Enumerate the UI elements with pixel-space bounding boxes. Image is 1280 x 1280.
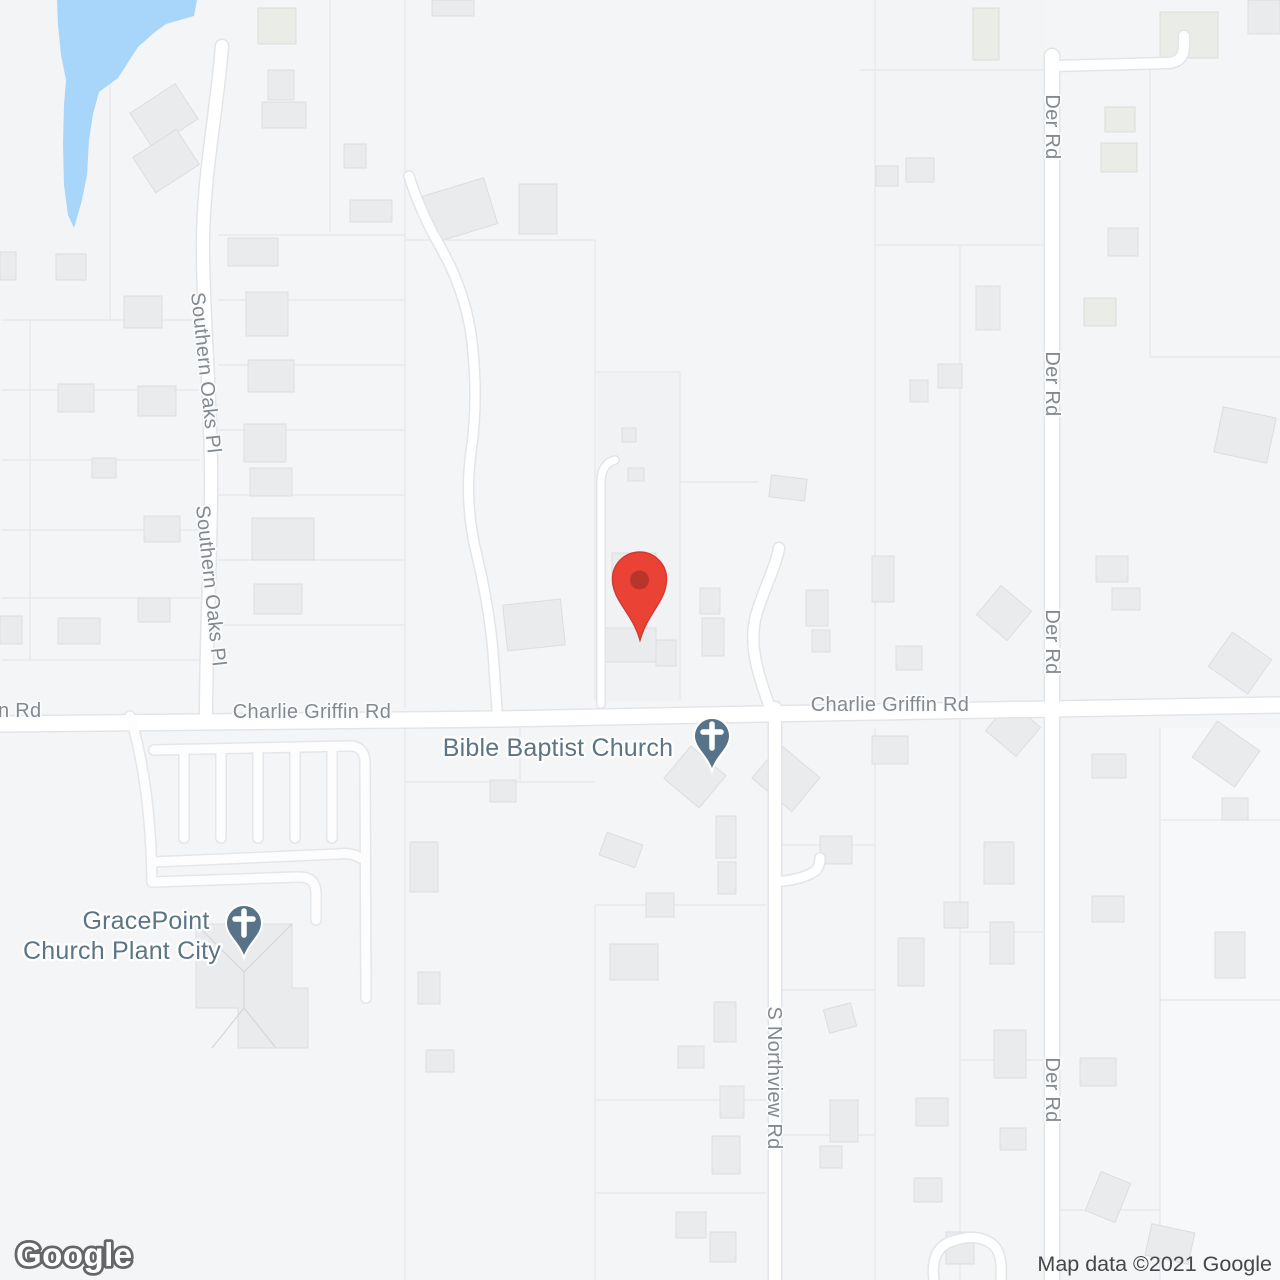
poi-label-gracepoint-line2[interactable]: Church Plant City (23, 937, 221, 965)
road-label-der-rd-4: Der Rd (1041, 1057, 1063, 1122)
road-label-southern-oaks-south: Southern Oaks Pl (191, 504, 230, 667)
road-label-n-rd: n Rd (0, 700, 41, 722)
road-label-southern-oaks-north: Southern Oaks Pl (186, 291, 225, 454)
road-label-s-northview: S Northview Rd (763, 1006, 785, 1149)
map-canvas[interactable]: n Rd Charlie Griffin Rd Charlie Griffin … (0, 0, 1280, 1280)
poi-label-bible-baptist[interactable]: Bible Baptist Church (443, 734, 674, 762)
road-label-charlie-griffin-east: Charlie Griffin Rd (811, 694, 969, 716)
road-label-charlie-griffin-west: Charlie Griffin Rd (233, 701, 391, 723)
google-logo[interactable]: Google (16, 1236, 133, 1273)
road-label-der-rd-2: Der Rd (1041, 351, 1063, 416)
road-label-der-rd-1: Der Rd (1041, 94, 1063, 159)
poi-label-gracepoint-line1[interactable]: GracePoint (82, 907, 209, 935)
road-label-der-rd-3: Der Rd (1041, 609, 1063, 674)
map-attribution: Map data ©2021 Google (1037, 1252, 1272, 1276)
